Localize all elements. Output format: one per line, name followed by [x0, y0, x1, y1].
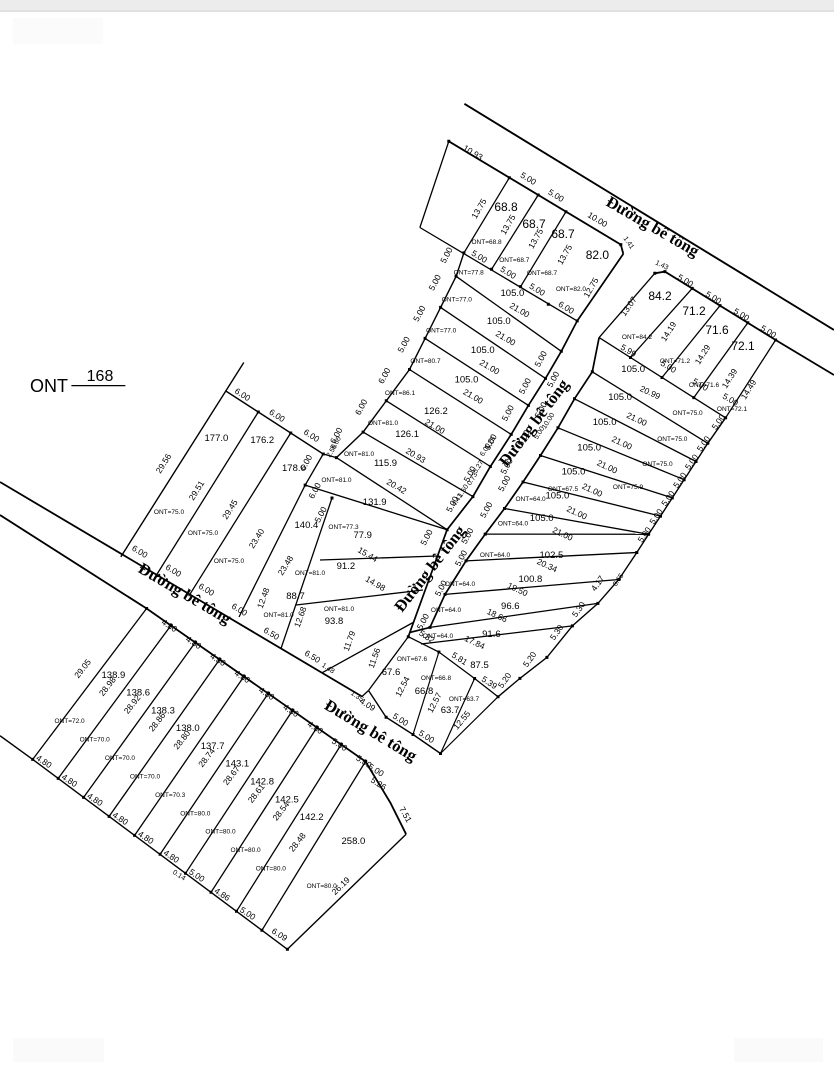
svg-text:ONT=70.0: ONT=70.0: [80, 737, 111, 744]
svg-text:ONT=80.0: ONT=80.0: [256, 866, 287, 873]
svg-text:105.0: 105.0: [562, 467, 586, 478]
svg-text:ONT=77.0: ONT=77.0: [426, 327, 457, 334]
svg-text:168: 168: [87, 368, 114, 385]
svg-text:100.8: 100.8: [519, 574, 543, 585]
svg-text:91.2: 91.2: [337, 561, 356, 572]
svg-text:ONT=64.0: ONT=64.0: [516, 496, 547, 503]
svg-text:258.0: 258.0: [342, 836, 366, 847]
svg-text:ONT=81.0: ONT=81.0: [321, 477, 352, 484]
svg-text:ONT=64.0: ONT=64.0: [431, 607, 462, 614]
svg-text:88.7: 88.7: [286, 591, 305, 602]
svg-text:126.1: 126.1: [395, 429, 419, 440]
svg-text:ONT=68.7: ONT=68.7: [527, 270, 558, 277]
svg-text:68.7: 68.7: [522, 217, 546, 231]
svg-text:84.2: 84.2: [648, 289, 672, 303]
svg-text:115.9: 115.9: [374, 458, 397, 469]
svg-text:ONT=80.0: ONT=80.0: [205, 829, 236, 836]
svg-text:ONT=77.0: ONT=77.0: [442, 297, 473, 304]
svg-text:ONT=72.1: ONT=72.1: [717, 406, 748, 413]
svg-text:105.0: 105.0: [455, 375, 479, 386]
svg-text:ONT=64.0: ONT=64.0: [445, 581, 476, 588]
svg-text:ONT=70.0: ONT=70.0: [105, 755, 136, 762]
svg-text:68.8: 68.8: [494, 200, 518, 214]
svg-text:ONT=75.0: ONT=75.0: [657, 436, 688, 443]
svg-text:ONT=81.0: ONT=81.0: [368, 420, 399, 427]
svg-text:131.9: 131.9: [363, 497, 387, 508]
svg-text:ONT=81.0: ONT=81.0: [264, 612, 295, 619]
svg-text:68.7: 68.7: [551, 227, 575, 241]
svg-text:77.9: 77.9: [353, 530, 372, 541]
svg-text:82.0: 82.0: [586, 248, 610, 262]
svg-text:ONT=67.6: ONT=67.6: [397, 656, 428, 663]
svg-text:ONT=75.0: ONT=75.0: [214, 558, 245, 565]
svg-text:105.0: 105.0: [530, 513, 554, 524]
svg-text:105.0: 105.0: [577, 442, 601, 453]
svg-text:ONT=86.1: ONT=86.1: [385, 390, 416, 397]
svg-text:ONT=70.0: ONT=70.0: [130, 773, 161, 780]
svg-text:ONT=84.2: ONT=84.2: [622, 334, 653, 341]
svg-text:105.0: 105.0: [621, 364, 645, 375]
svg-text:93.8: 93.8: [325, 616, 344, 627]
svg-text:ONT=80.7: ONT=80.7: [410, 358, 441, 365]
svg-text:71.6: 71.6: [705, 323, 729, 337]
svg-text:105.0: 105.0: [487, 316, 511, 327]
svg-text:ONT=68.8: ONT=68.8: [472, 239, 503, 246]
svg-text:ONT=75.0: ONT=75.0: [642, 461, 673, 468]
svg-text:ONT=66.8: ONT=66.8: [421, 675, 452, 682]
svg-text:ONT=72.0: ONT=72.0: [55, 718, 86, 725]
svg-text:72.1: 72.1: [731, 339, 755, 353]
svg-text:91.6: 91.6: [482, 629, 501, 640]
svg-text:87.5: 87.5: [470, 660, 489, 671]
svg-text:66.8: 66.8: [415, 686, 434, 697]
svg-text:71.2: 71.2: [682, 304, 706, 318]
svg-text:105.0: 105.0: [471, 345, 495, 356]
svg-text:ONT=80.0: ONT=80.0: [231, 847, 262, 854]
svg-text:ONT=75.0: ONT=75.0: [188, 530, 219, 537]
svg-text:126.2: 126.2: [424, 406, 448, 417]
svg-text:105.0: 105.0: [608, 392, 632, 403]
svg-text:ONT=81.0: ONT=81.0: [344, 451, 375, 458]
svg-text:ONT=64.0: ONT=64.0: [423, 633, 454, 640]
svg-text:ONT=67.5: ONT=67.5: [548, 486, 579, 493]
svg-text:176.2: 176.2: [250, 435, 274, 446]
svg-text:178.0: 178.0: [282, 463, 306, 474]
svg-text:ONT=64.0: ONT=64.0: [498, 521, 529, 528]
svg-text:ONT=75.0: ONT=75.0: [154, 509, 185, 516]
svg-text:ONT=81.0: ONT=81.0: [295, 570, 326, 577]
svg-text:63.7: 63.7: [441, 705, 460, 716]
svg-text:ONT=80.0: ONT=80.0: [180, 810, 211, 817]
svg-text:105.0: 105.0: [501, 288, 525, 299]
svg-text:ONT=63.7: ONT=63.7: [449, 696, 480, 703]
svg-text:ONT=64.0: ONT=64.0: [480, 552, 511, 559]
svg-text:ONT: ONT: [30, 376, 68, 396]
svg-text:ONT=70.3: ONT=70.3: [155, 792, 186, 799]
svg-text:ONT=75.0: ONT=75.0: [673, 410, 704, 417]
svg-text:105.0: 105.0: [593, 417, 617, 428]
svg-text:ONT=81.0: ONT=81.0: [324, 606, 355, 613]
svg-text:142.2: 142.2: [300, 812, 324, 823]
svg-text:96.6: 96.6: [501, 601, 520, 612]
svg-text:ONT=75.9: ONT=75.9: [613, 484, 644, 491]
svg-text:177.0: 177.0: [205, 433, 229, 444]
svg-text:ONT=77.8: ONT=77.8: [454, 269, 485, 276]
svg-text:67.6: 67.6: [382, 667, 401, 678]
